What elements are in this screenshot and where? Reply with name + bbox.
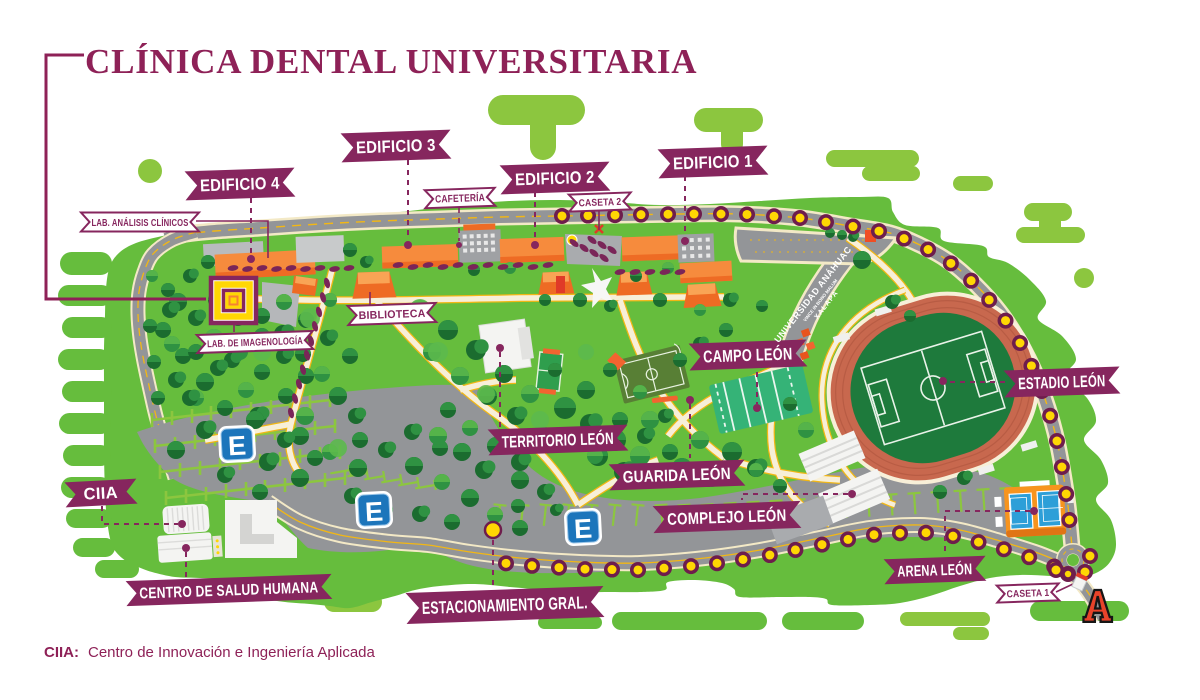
svg-text:CLÍNICA DENTAL UNIVERSITARIA: CLÍNICA DENTAL UNIVERSITARIA [85,42,697,81]
svg-text:GUARIDA LEÓN: GUARIDA LEÓN [622,464,731,487]
svg-text:E: E [573,512,593,544]
svg-text:CASETA 2: CASETA 2 [579,197,622,209]
svg-text:E: E [364,495,384,527]
svg-text:CASETA 1: CASETA 1 [1007,588,1050,600]
svg-text:EDIFICIO 4: EDIFICIO 4 [200,174,280,196]
svg-text:BIBLIOTECA: BIBLIOTECA [358,308,425,322]
svg-text:EDIFICIO 3: EDIFICIO 3 [356,136,436,158]
svg-text:ARENA LEÓN: ARENA LEÓN [897,560,973,581]
svg-text:EDIFICIO 1: EDIFICIO 1 [673,152,753,174]
svg-text:LAB. ANÁLISIS CLÍNICOS: LAB. ANÁLISIS CLÍNICOS [92,216,189,229]
svg-text:EDIFICIO 2: EDIFICIO 2 [515,168,595,190]
svg-text:E: E [227,429,247,461]
svg-text:ESTADIO LEÓN: ESTADIO LEÓN [1018,371,1106,393]
svg-text:TERRITORIO LEÓN: TERRITORIO LEÓN [501,429,614,452]
svg-text:CAMPO LEÓN: CAMPO LEÓN [703,344,793,366]
svg-text:CIIA: CIIA [83,484,118,504]
svg-text:CAFETERÍA: CAFETERÍA [435,191,485,206]
svg-text:CIIA:Centro de Innovación e In: CIIA:Centro de Innovación e Ingeniería A… [44,644,376,661]
